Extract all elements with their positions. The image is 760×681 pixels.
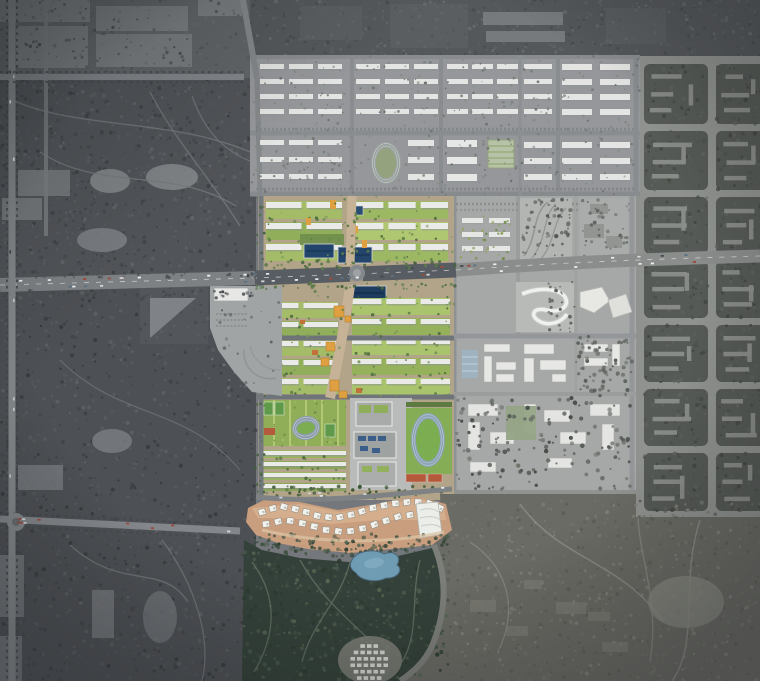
masterplan-aerial-view[interactable] <box>0 0 760 681</box>
masterplan-canvas <box>0 0 760 681</box>
vignette <box>0 0 760 681</box>
